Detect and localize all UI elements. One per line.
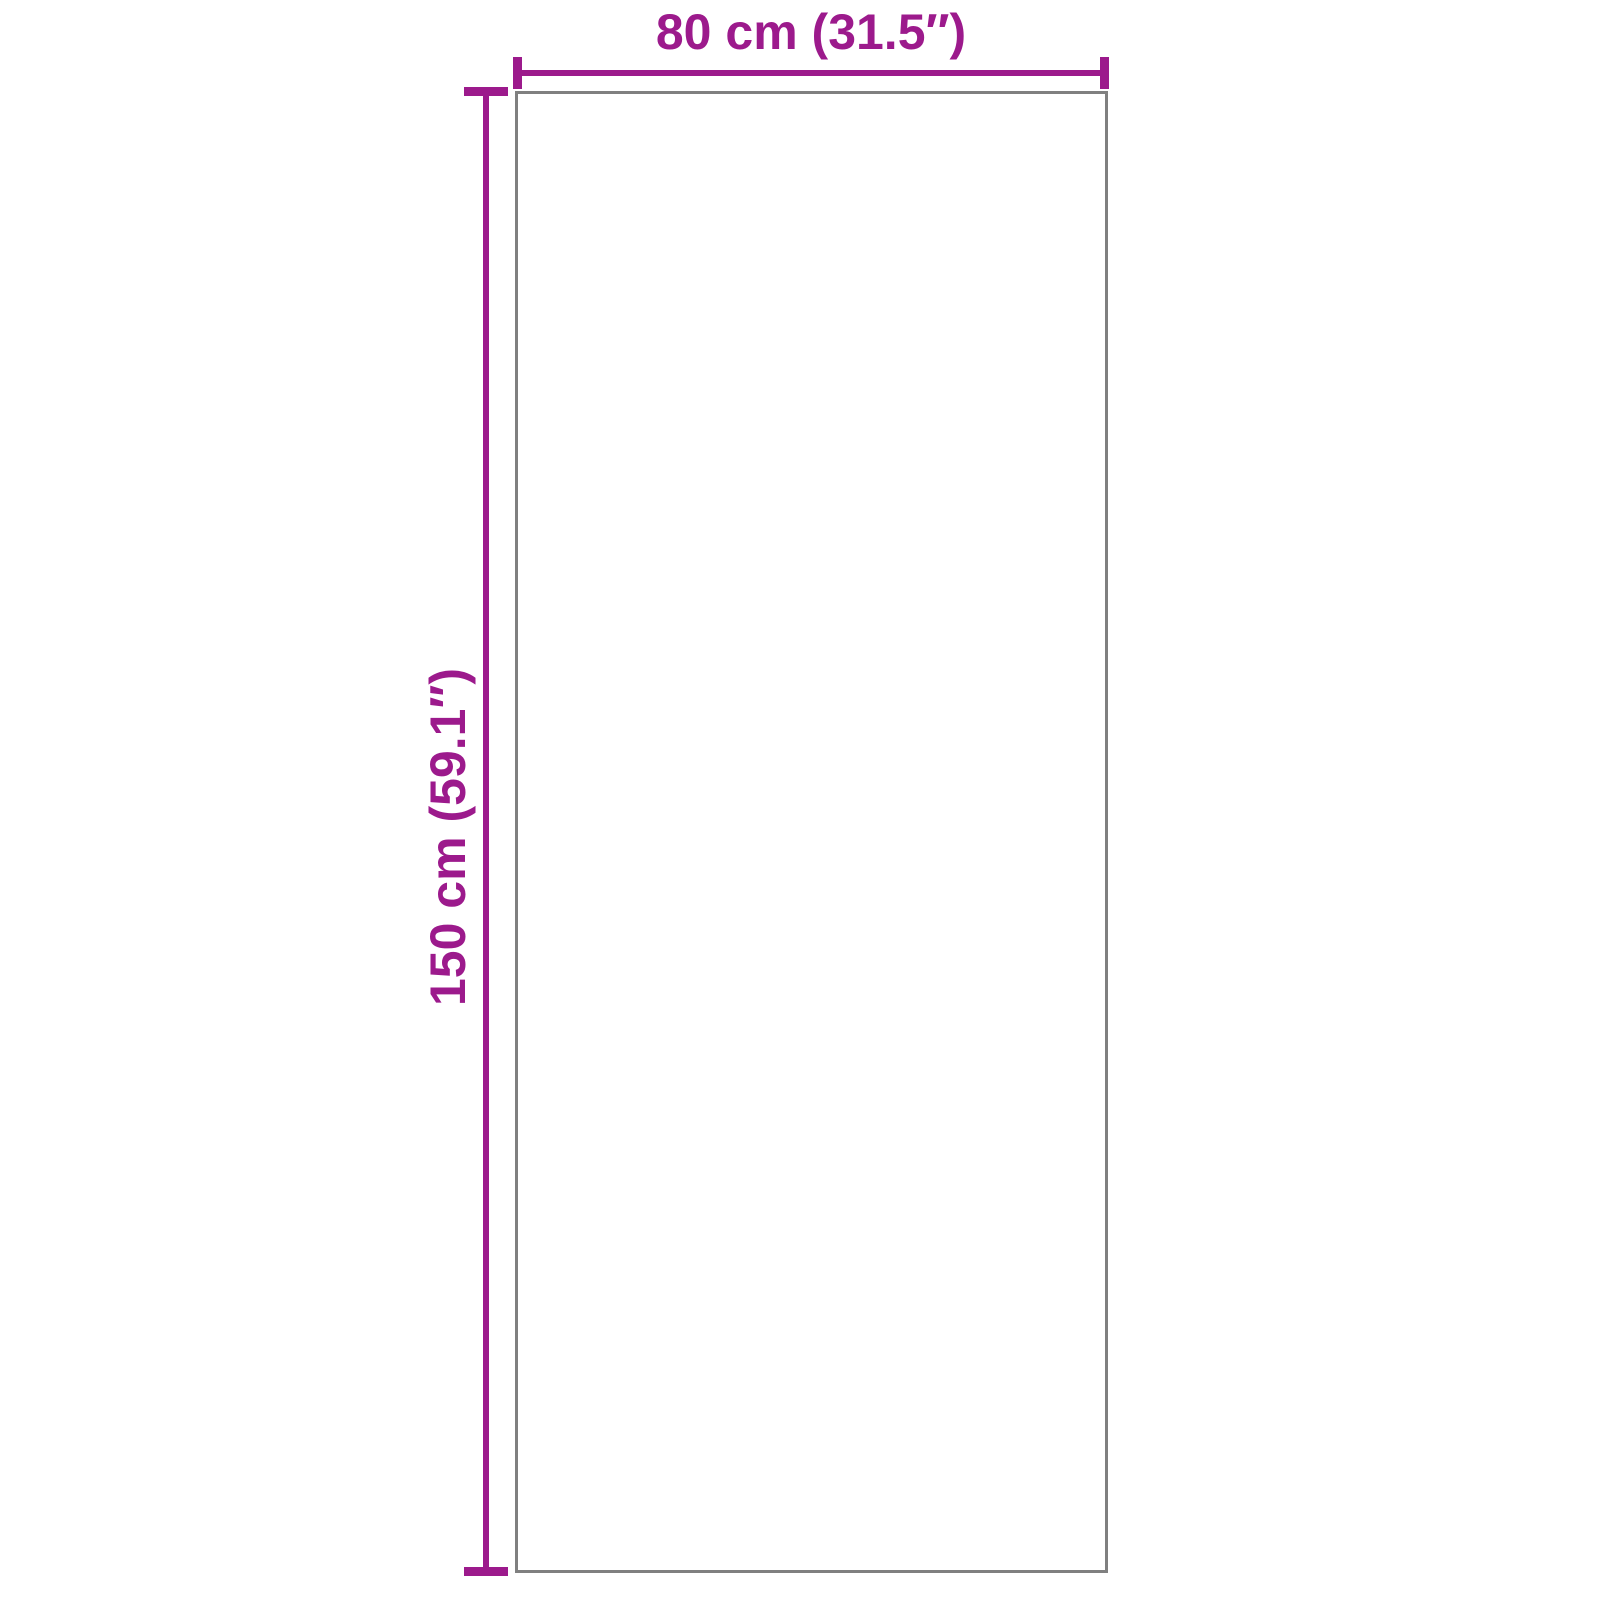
width-dimension-label: 80 cm (31.5″) xyxy=(513,4,1109,60)
width-dimension-end-tick xyxy=(1100,57,1109,89)
width-dimension-rule xyxy=(513,70,1109,76)
height-dimension-rule xyxy=(483,87,489,1576)
product-dimension-diagram: 80 cm (31.5″) 150 cm (59.1″) xyxy=(0,0,1600,1600)
height-dimension-label: 150 cm (59.1″) xyxy=(418,487,478,1187)
product-outline-rect xyxy=(515,91,1108,1573)
width-dimension-line xyxy=(513,57,1109,89)
height-dimension-end-tick xyxy=(464,1567,508,1576)
